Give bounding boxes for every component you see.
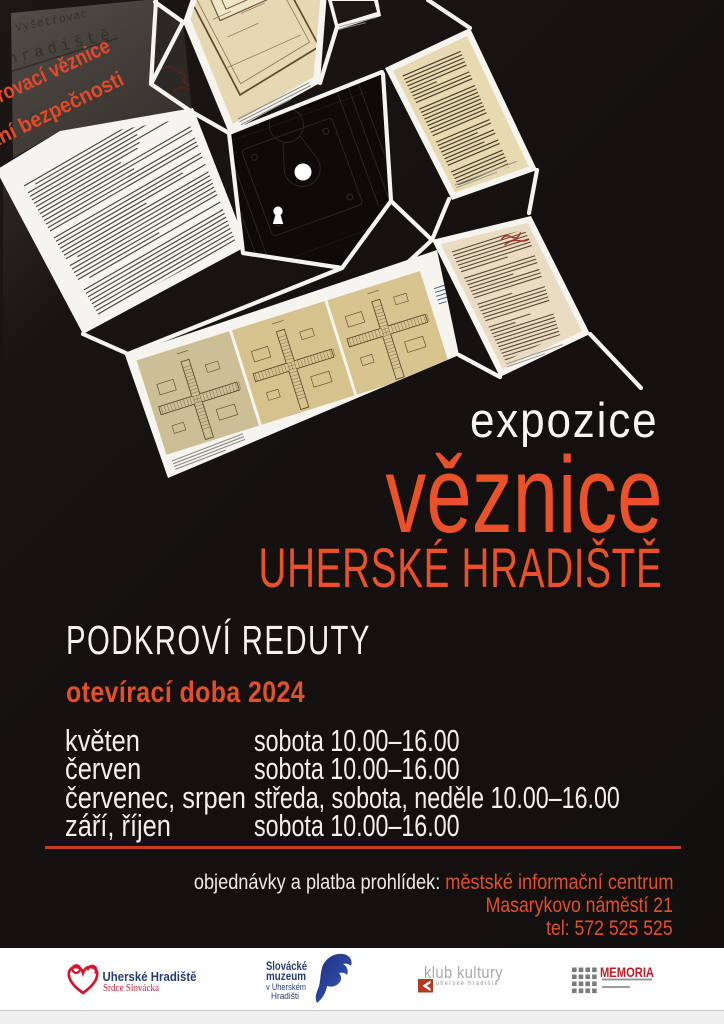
svg-text:uherské hradiště: uherské hradiště: [436, 980, 499, 987]
svg-text:Hradišti: Hradišti: [271, 991, 299, 1001]
svg-text:Srdce Slovácka: Srdce Slovácka: [103, 982, 159, 994]
svg-text:muzeum: muzeum: [266, 969, 306, 983]
svg-text:MEMORIA: MEMORIA: [600, 965, 654, 980]
